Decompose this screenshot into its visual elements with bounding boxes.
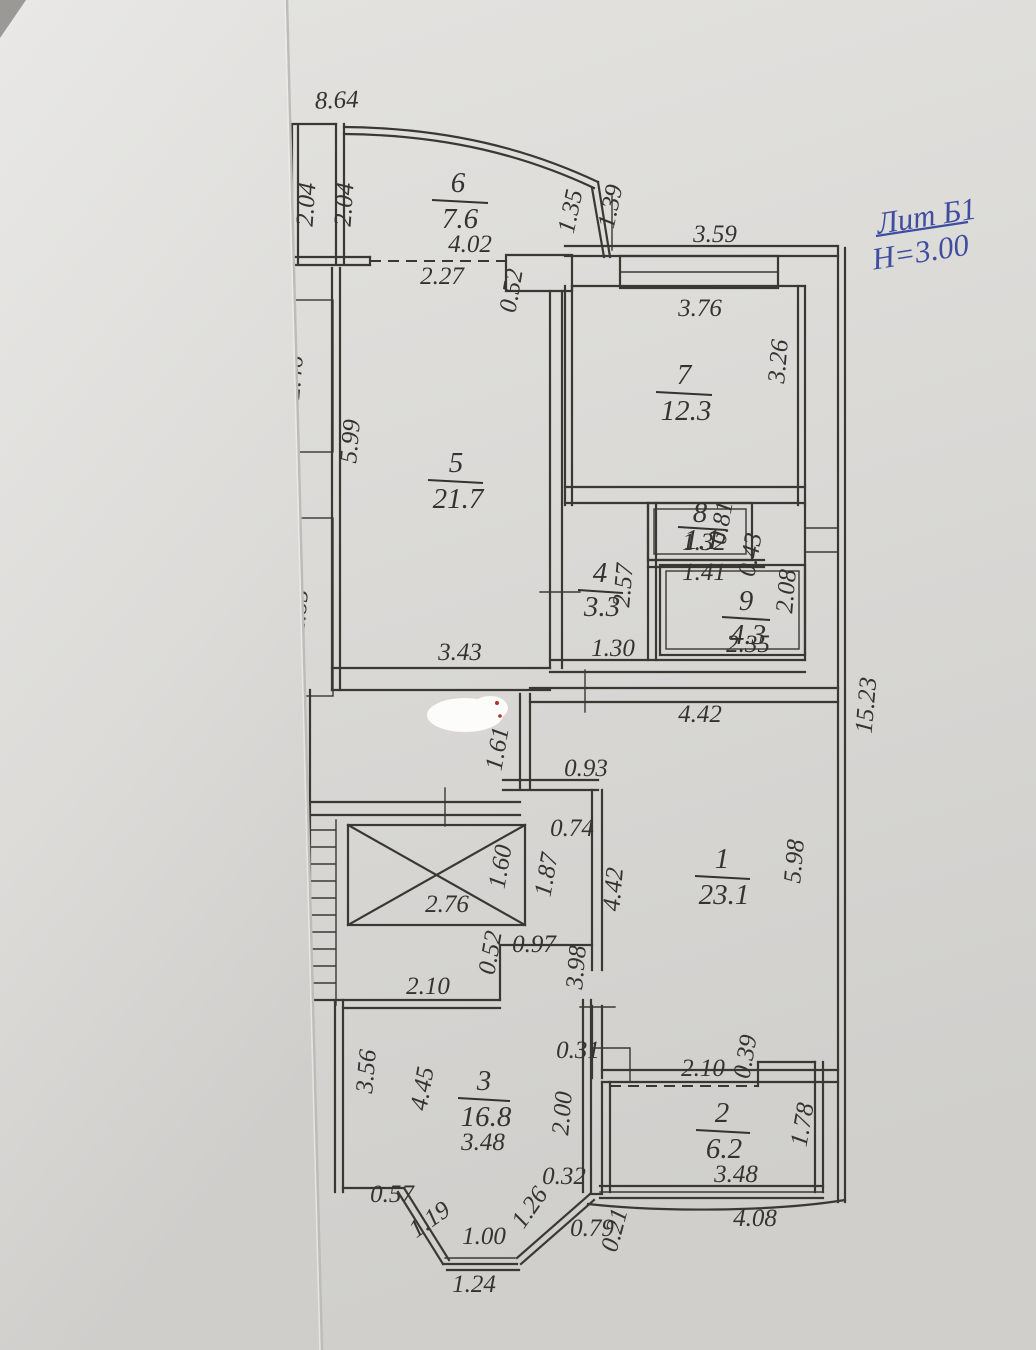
room-6-number: 6 xyxy=(451,167,466,199)
dim-bay-front: 1.00 xyxy=(462,1223,506,1250)
dim-room8-bottom: 1.41 xyxy=(682,559,726,586)
room-5-number: 5 xyxy=(449,447,464,479)
dim-room2-top: 2.10 xyxy=(681,1055,725,1082)
room-4-area: 3.3 xyxy=(583,591,620,623)
dim-room3-top: 2.10 xyxy=(406,973,450,1000)
room-9-number: 9 xyxy=(739,585,754,617)
dim-room4-width: 1.30 xyxy=(591,635,635,662)
room-1-number: 1 xyxy=(715,843,730,875)
room-4-number: 4 xyxy=(593,557,608,589)
floorplan-photo: 8.64 2.04 2.04 4.02 2.27 0.52 1.35 1.39 … xyxy=(0,0,1036,1350)
dim-bay-front-outer: 1.24 xyxy=(452,1271,496,1298)
room-2-area: 6.2 xyxy=(706,1133,742,1165)
dim-room7-window: 3.59 xyxy=(692,221,737,248)
room-1-area: 23.1 xyxy=(699,879,750,911)
dim-step-wide: 0.97 xyxy=(512,931,557,958)
dim-shaft-top: 0.74 xyxy=(550,815,594,842)
floorplan-drawing: 8.64 2.04 2.04 4.02 2.27 0.52 1.35 1.39 … xyxy=(0,0,1036,1350)
dim-room9-depth: 2.08 xyxy=(771,568,802,614)
room-9-area: 4.3 xyxy=(730,619,766,651)
dim-balcony-left-inner: 2.04 xyxy=(330,182,360,228)
dim-balcony-bottom: 4.02 xyxy=(448,231,492,258)
dim-room2-bottom-outer: 4.08 xyxy=(733,1205,777,1232)
room-5-area: 21.7 xyxy=(433,483,485,515)
dim-right-total: 15.23 xyxy=(851,676,883,734)
dim-room3-bottom: 3.48 xyxy=(460,1129,505,1156)
room-3-number: 3 xyxy=(476,1065,492,1097)
dim-balcony-bottom-inner: 2.27 xyxy=(420,263,465,290)
dim-balcony-width: 8.64 xyxy=(314,86,359,115)
room-6-area: 7.6 xyxy=(442,203,479,235)
dim-bay-step: 0.32 xyxy=(542,1163,586,1190)
dim-room1-right: 5.98 xyxy=(779,838,810,884)
dim-room2-bottom: 3.48 xyxy=(713,1161,758,1188)
dim-room3-left: 3.56 xyxy=(351,1048,382,1095)
dim-room1-top: 4.42 xyxy=(678,701,722,728)
dim-room1-left: 4.42 xyxy=(598,866,629,912)
dim-hall-door: 0.93 xyxy=(564,755,608,782)
dim-bay-left: 0.57 xyxy=(370,1181,415,1208)
dim-shaft-width: 2.76 xyxy=(425,891,469,918)
dim-room1-step: 0.31 xyxy=(556,1037,600,1064)
dim-room5-width: 3.43 xyxy=(437,639,482,666)
dim-room3-right: 2.00 xyxy=(547,1090,578,1136)
dim-room5-depth: 5.99 xyxy=(335,418,366,464)
room-7-number: 7 xyxy=(677,359,693,391)
dim-room7-width: 3.76 xyxy=(677,295,722,322)
overlay-sheet xyxy=(0,0,322,1350)
room-2-number: 2 xyxy=(715,1097,730,1129)
room-3-area: 16.8 xyxy=(461,1101,512,1133)
room-7-area: 12.3 xyxy=(661,395,712,427)
room-8-area: 1.1 xyxy=(684,524,720,556)
dim-room1-lower-left: 3.98 xyxy=(561,944,592,991)
dim-balcony-left-outer: 2.04 xyxy=(292,182,322,228)
dim-room7-depth: 3.26 xyxy=(763,338,794,385)
